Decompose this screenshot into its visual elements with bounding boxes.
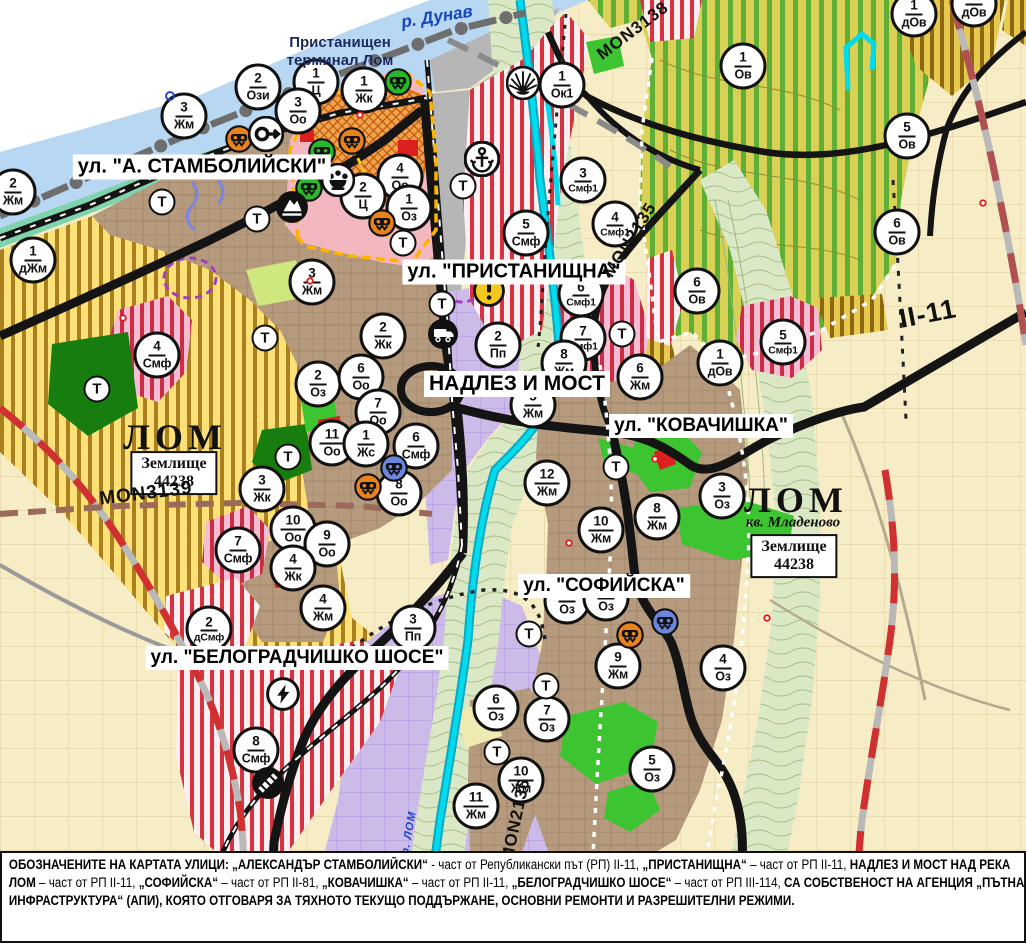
street-label-kovachishka: ул. "КОВАЧИШКА" (609, 414, 793, 438)
street-label-belogradchishko-shose: ул. "БЕЛОГРАДЧИШКО ШОСЕ" (146, 646, 449, 670)
footnote-segment: – част от РП II-81, (218, 875, 322, 890)
land-plot-word: Землище (141, 455, 206, 473)
footnote-segment: „КОВАЧИШКА“ (322, 875, 409, 890)
footnote-segment: – част от РП III-114, (671, 875, 784, 890)
road-number-label: MON3139 (98, 477, 194, 510)
land-plot-word: Землище (761, 538, 826, 556)
footnote-segment: – част от РП II-11, (409, 875, 512, 890)
footnote-segment: ОБОЗНАЧЕНИТЕ НА КАРТАТА УЛИЦИ: „АЛЕКСАНД… (9, 857, 428, 872)
footnote-segment: – част от РП II-11, (36, 875, 139, 890)
land-plot-number: 44238 (761, 556, 826, 574)
street-label-sofiyska: ул. "СОФИЙСКА" (518, 574, 690, 598)
map-labels-layer: р. Дунав Пристанищен терминал Лом ЛОМ Зе… (0, 0, 1026, 943)
port-terminal-line2: терминал Лом (287, 52, 394, 69)
footnote-segment: „ПРИСТАНИЩНА“ (642, 857, 746, 872)
road-number-label: р. ЛОМ (399, 810, 418, 856)
road-number-label: MON3138 (593, 0, 673, 64)
port-terminal-line1: Пристанищен (289, 34, 391, 51)
map-footnote: ОБОЗНАЧЕНИТЕ НА КАРТАТА УЛИЦИ: „АЛЕКСАНД… (0, 851, 1026, 943)
map-footnote-text: ОБОЗНАЧЕНИТЕ НА КАРТАТА УЛИЦИ: „АЛЕКСАНД… (2, 853, 1026, 913)
district-mladenovo-label: кв. Младеново (746, 515, 840, 532)
footnote-segment: „БЕЛОГРАДЧИШКО ШОСЕ“ (512, 875, 672, 890)
road-number-label: II-11 (897, 293, 959, 334)
street-label-stamboliyski: ул. "А. СТАМБОЛИЙСКИ" (73, 155, 331, 180)
footnote-segment: - част от Републикански път (РП) II-11, (428, 857, 642, 872)
port-terminal-label: Пристанищен терминал Лом (287, 34, 394, 70)
road-number-label: MON2135 (599, 199, 661, 281)
footnote-segment: „СОФИЙСКА“ (139, 875, 218, 890)
land-plot-box-right: Землище 44238 (750, 534, 837, 578)
zoning-map: 2Ози1Ц1Жк3Оо3Жм2Жм1дЖм3Жм4Оо2Ц1Оз1Ок13См… (0, 0, 1026, 943)
street-label-nadlez-i-most: НАДЛЕЗ И МОСТ (424, 371, 610, 397)
footnote-segment: – част от РП II-11, (747, 857, 850, 872)
river-danube-label: р. Дунав (400, 1, 474, 32)
street-label-pristanishtna: ул. "ПРИСТАНИЩНА" (402, 260, 625, 285)
